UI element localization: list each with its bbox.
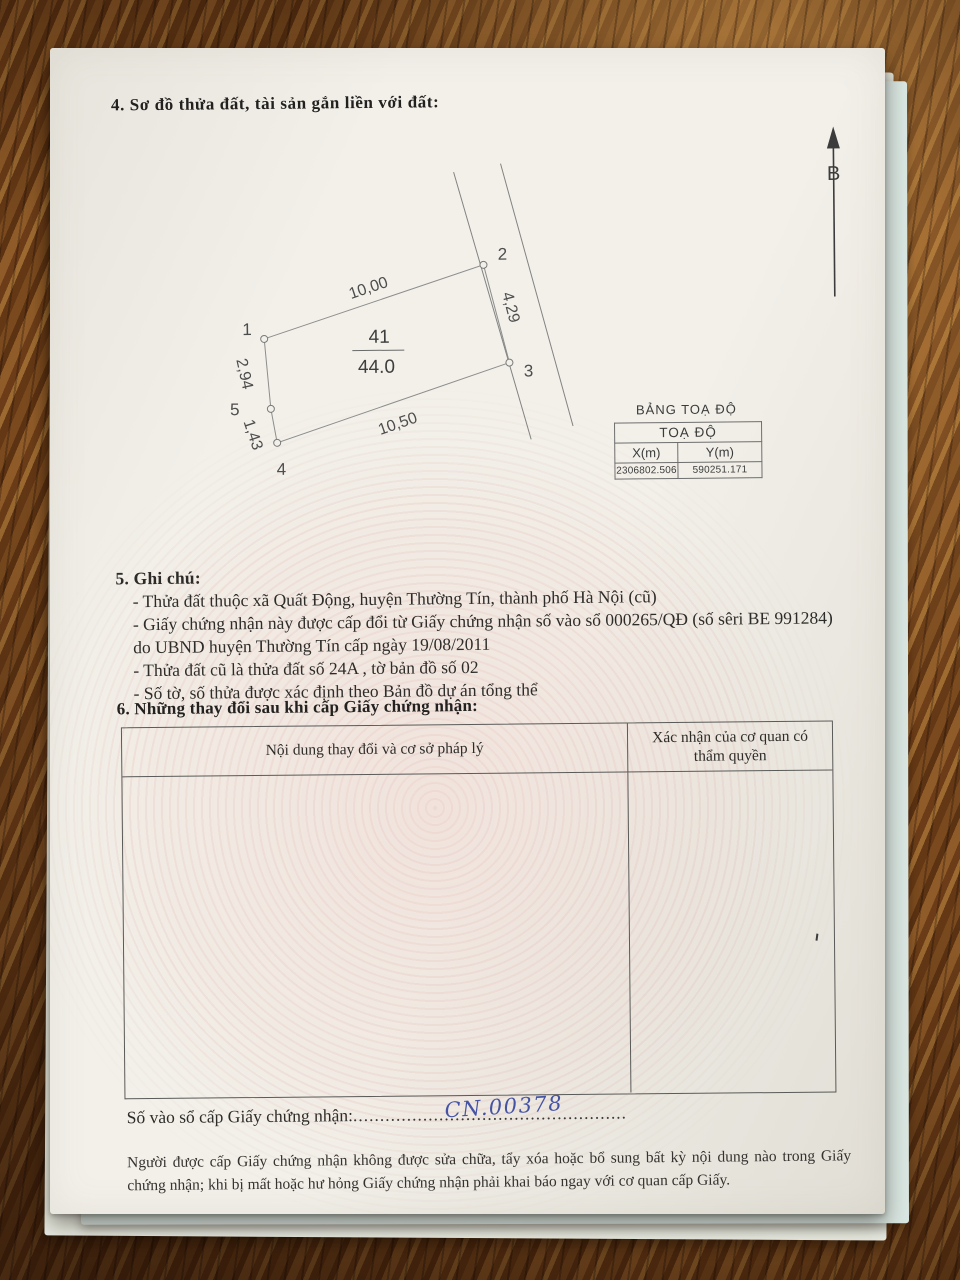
y-value: 590251.171 [678,462,762,479]
changes-col1-header: Nội dung thay đổi và cơ sở pháp lý [122,723,628,776]
section6-heading: 6. Những thay đổi sau khi cấp Giấy chứng… [117,696,478,719]
parcel-number: 41 [369,327,390,349]
changes-table-body [122,771,835,1098]
coordinate-table-block: BẢNG TOẠ ĐỘ TOẠ ĐỘ X(m) Y(m) 2306802.506… [604,401,770,480]
changes-table: Nội dung thay đổi và cơ sở pháp lý Xác n… [121,720,837,1099]
vertex-label-5: 5 [230,400,240,420]
footer-note: Người được cấp Giấy chứng nhận không đượ… [127,1144,851,1197]
photo-of-certificate: 4. Sơ đồ thửa đất, tài sản gắn liền với … [0,0,960,1280]
vertex-label-4: 4 [277,460,287,480]
registry-label: Số vào sổ cấp Giấy chứng nhận: [127,1105,353,1127]
col-y-header: Y(m) [678,442,762,463]
changes-table-header-row: Nội dung thay đổi và cơ sở pháp lý Xác n… [122,722,832,778]
vertex-label-1: 1 [242,320,252,340]
vertex-label-2: 2 [498,245,508,265]
note-line: - Giấy chứng nhận này được cấp đổi từ Gi… [116,606,844,659]
coordinate-table-title: BẢNG TOẠ ĐỘ [604,401,769,418]
section5-notes: 5. Ghi chú: - Thửa đất thuộc xã Quất Độn… [115,560,844,705]
coordinate-table: TOẠ ĐỘ X(m) Y(m) 2306802.506 590251.171 [614,421,763,479]
coordinate-table-header: TOẠ ĐỘ [615,422,762,443]
parcel-area: 44.0 [358,357,395,379]
changes-col2-header: Xác nhận của cơ quan có thẩm quyền [628,722,832,772]
x-value: 2306802.506 [615,462,678,479]
north-arrow [827,126,842,296]
vertex-label-3: 3 [524,361,534,381]
certificate-page: 4. Sơ đồ thửa đất, tài sản gắn liền với … [50,48,885,1214]
col-x-header: X(m) [615,442,678,463]
page-content: 4. Sơ đồ thửa đất, tài sản gắn liền với … [44,44,890,1218]
north-label: B [827,163,841,186]
changes-col1-cell [122,772,631,1097]
